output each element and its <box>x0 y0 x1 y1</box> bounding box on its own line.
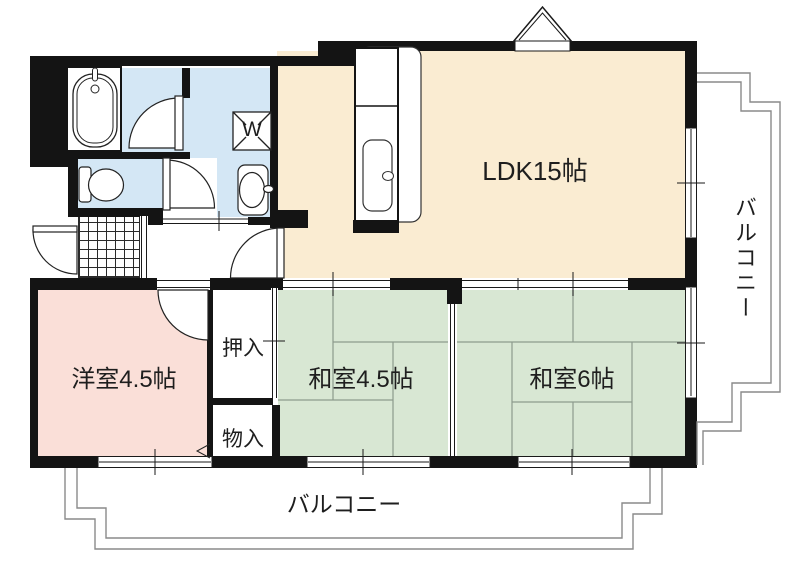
triangle-marker <box>513 7 572 51</box>
door-entrance <box>33 226 77 274</box>
door-bathroom <box>129 96 183 150</box>
door-washroom <box>163 158 215 210</box>
label-oshiire: 押入 <box>213 332 273 362</box>
washbasin-icon <box>238 165 274 215</box>
door-western-room <box>158 290 208 340</box>
label-ldk: LDK15帖 <box>435 151 635 188</box>
window-western-bottom <box>98 449 212 475</box>
plan-linework <box>0 0 800 567</box>
label-western-room: 洋室4.5帖 <box>34 359 214 394</box>
label-washing-machine: W <box>238 118 266 142</box>
window-washitsu6-right <box>677 287 705 398</box>
sliding-door-washroom <box>163 211 248 231</box>
monoire-door-marker <box>197 444 210 458</box>
genkan-step-edge <box>140 216 148 278</box>
kitchen-counter <box>353 47 421 233</box>
doorway-western-room <box>157 278 210 290</box>
label-japanese-45: 和室4.5帖 <box>271 359 451 394</box>
label-balcony-right: バルコニー <box>728 183 760 333</box>
door-ldk <box>231 228 285 278</box>
label-monoire: 物入 <box>213 423 273 453</box>
bathtub-icon <box>73 68 117 147</box>
label-japanese-6: 和室6帖 <box>478 359 666 394</box>
toilet-icon <box>79 167 124 202</box>
floor-plan: LDK15帖 和室4.5帖 和室6帖 洋室4.5帖 押入 物入 W バルコニー … <box>0 0 800 567</box>
label-balcony-bottom: バルコニー <box>244 485 444 519</box>
window-ldk-right <box>677 128 705 238</box>
sliding-door-ldk-washitsu6 <box>462 272 628 296</box>
window-washitsu6-bottom <box>518 449 630 475</box>
window-washitsu45-bottom <box>307 449 430 475</box>
sliding-door-ldk-washitsu45 <box>283 272 390 296</box>
